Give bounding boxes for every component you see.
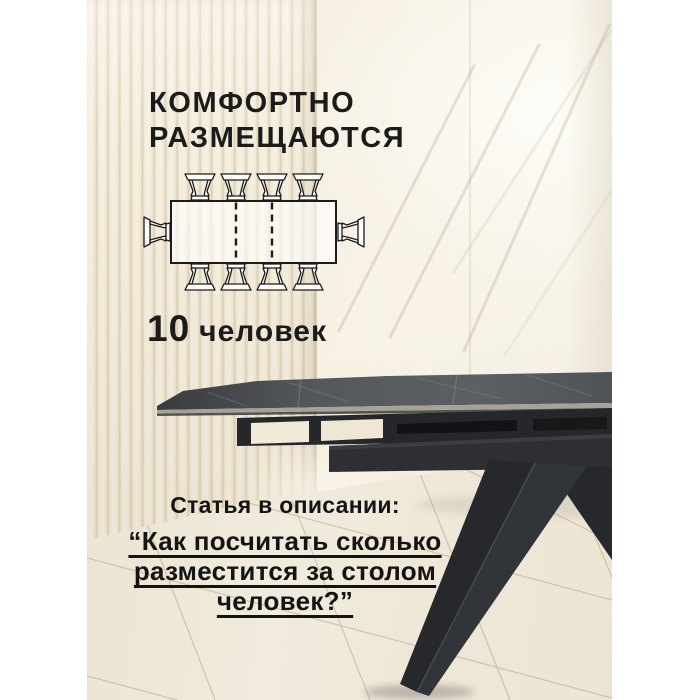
- note-quote: “Как посчитать сколько разместится за ст…: [93, 526, 477, 616]
- chair-icon: [257, 174, 287, 200]
- chair-icon: [257, 264, 287, 290]
- table-plan-rect: [171, 201, 336, 263]
- chair-icon: [221, 264, 251, 290]
- chair-icon: [144, 217, 170, 247]
- chair-icon: [293, 264, 323, 290]
- note-quote-line3: человек?”: [93, 586, 477, 616]
- note-label: Статья в описании:: [93, 492, 477, 519]
- rail-cutout: [251, 421, 309, 444]
- rail-slot: [533, 417, 607, 431]
- capacity: 10 человек: [147, 308, 327, 350]
- note-block: Статья в описании: “Как посчитать скольк…: [93, 492, 477, 616]
- product-card: КОМФОРТНО РАЗМЕЩАЮТСЯ: [87, 0, 612, 700]
- chair-icon: [185, 174, 215, 200]
- note-quote-line1: “Как посчитать сколько: [93, 526, 477, 556]
- rail-cutout: [321, 419, 383, 441]
- headline-line2: РАЗМЕЩАЮТСЯ: [149, 121, 405, 156]
- chair-icon: [185, 264, 215, 290]
- note-quote-line2: разместится за столом: [93, 556, 477, 586]
- page-background: КОМФОРТНО РАЗМЕЩАЮТСЯ: [0, 0, 700, 700]
- headline-line1: КОМФОРТНО: [149, 86, 405, 121]
- chair-icon: [338, 217, 364, 247]
- chair-icon: [293, 174, 323, 200]
- capacity-label: человек: [199, 315, 327, 349]
- chair-icon: [221, 174, 251, 200]
- headline: КОМФОРТНО РАЗМЕЩАЮТСЯ: [149, 86, 405, 156]
- table-plan-diagram: [137, 170, 367, 298]
- capacity-number: 10: [147, 308, 190, 350]
